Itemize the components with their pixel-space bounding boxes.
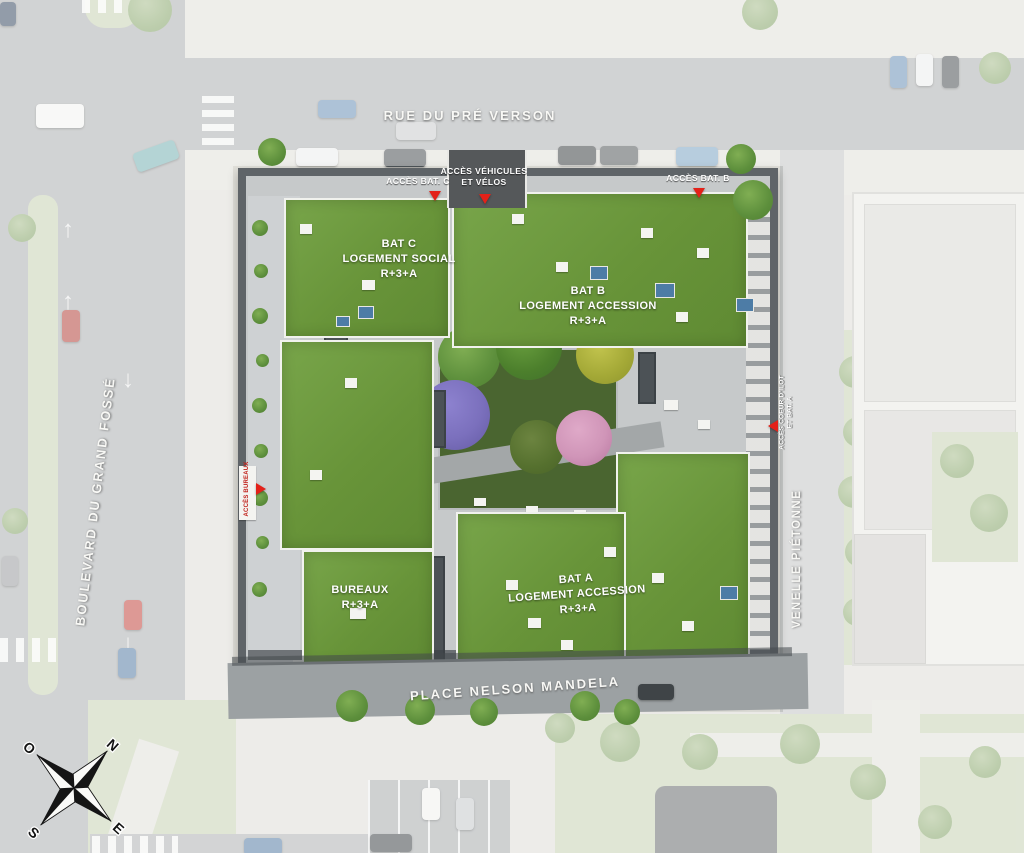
compass-rose: N E S O [8, 720, 140, 853]
tree [336, 690, 368, 722]
core-east [638, 352, 656, 404]
skylight [310, 470, 322, 480]
access-marker-bureaux [256, 483, 266, 495]
compass-west-label: O [20, 738, 39, 757]
skylight [641, 228, 653, 238]
access-label-bat-b: ACCÈS BAT. B [648, 173, 748, 184]
terrace-table [698, 420, 710, 429]
street-label-venelle: VENELLE PIÉTONNE [791, 459, 803, 659]
tree [733, 180, 773, 220]
access-label-vehicules-line2: ET VÉLOS [439, 177, 529, 188]
skylight [300, 224, 312, 234]
fade-overlay-left [0, 166, 233, 712]
bat-b-subtitle: LOGEMENT ACCESSION [498, 299, 678, 314]
tree [258, 138, 286, 166]
bureaux-floors: R+3+A [300, 598, 420, 613]
solar-panel [736, 298, 754, 312]
street-label-rue-du-pre-verson: RUE DU PRÉ VERSON [340, 108, 600, 123]
bush [252, 582, 267, 597]
skylight [556, 262, 568, 272]
skylight [345, 378, 357, 388]
bat-c-title: BAT C [319, 237, 479, 252]
tree [470, 698, 498, 726]
bat-b-title: BAT B [498, 284, 678, 299]
access-marker-vehicules [479, 194, 491, 204]
building-label-bat-b: BAT B LOGEMENT ACCESSION R+3+A [498, 284, 678, 329]
access-label-bureaux: ACCÈS BUREAUX [244, 446, 250, 532]
skylight [561, 640, 573, 650]
bush [256, 354, 269, 367]
solar-panel [720, 586, 738, 600]
roof-bat-a-east [616, 452, 750, 666]
garden-tree-pink [556, 410, 612, 466]
car [638, 684, 674, 700]
fade-overlay-top [0, 0, 1024, 166]
roof-west-wing [280, 340, 434, 550]
skylight [512, 214, 524, 224]
access-label-vehicules: ACCÈS VÉHICULES ET VÉLOS [439, 166, 529, 188]
compass-south-label: S [25, 824, 43, 842]
access-marker-bat-c [429, 191, 441, 201]
solar-panel [590, 266, 608, 280]
bat-b-floors: R+3+A [498, 314, 678, 329]
fade-overlay-right [783, 166, 1024, 712]
bush [254, 264, 268, 278]
access-marker-coeur-ilot [768, 420, 778, 432]
access-label-coeur-ilot-line2: ET BAT. A [787, 370, 795, 454]
terrace-table [664, 400, 678, 410]
tree [570, 691, 600, 721]
bush [252, 398, 267, 413]
access-label-bureaux-line2: BUREAUX [244, 462, 250, 493]
skylight [682, 621, 694, 631]
solar-panel [358, 306, 374, 319]
skylight [697, 248, 709, 258]
compass-east-label: E [110, 819, 128, 837]
bush [254, 444, 268, 458]
solar-panel [336, 316, 350, 327]
bureaux-title: BUREAUX [300, 583, 420, 598]
bush [256, 536, 269, 549]
bat-c-floors: R+3+A [319, 267, 479, 282]
tree [726, 144, 756, 174]
access-marker-bat-b [693, 188, 705, 198]
building-label-bureaux: BUREAUX R+3+A [300, 583, 420, 613]
garden-shrub [510, 420, 564, 474]
site-plan-canvas: ↑ ↑ ↓ ↓ [0, 0, 1024, 853]
access-label-bureaux-line1: ACCÈS [244, 494, 250, 516]
access-label-coeur-ilot: ACCÈS COEUR D'ILOT ET BAT. A [779, 370, 796, 454]
fade-overlay-bottom [0, 712, 1024, 853]
tree [614, 699, 640, 725]
bat-c-subtitle: LOGEMENT SOCIAL [319, 252, 479, 267]
bush [252, 308, 268, 324]
bush [252, 220, 268, 236]
skylight [604, 547, 616, 557]
access-label-vehicules-line1: ACCÈS VÉHICULES [439, 166, 529, 177]
building-label-bat-c: BAT C LOGEMENT SOCIAL R+3+A [319, 237, 479, 282]
terrace-lounger [474, 498, 486, 506]
